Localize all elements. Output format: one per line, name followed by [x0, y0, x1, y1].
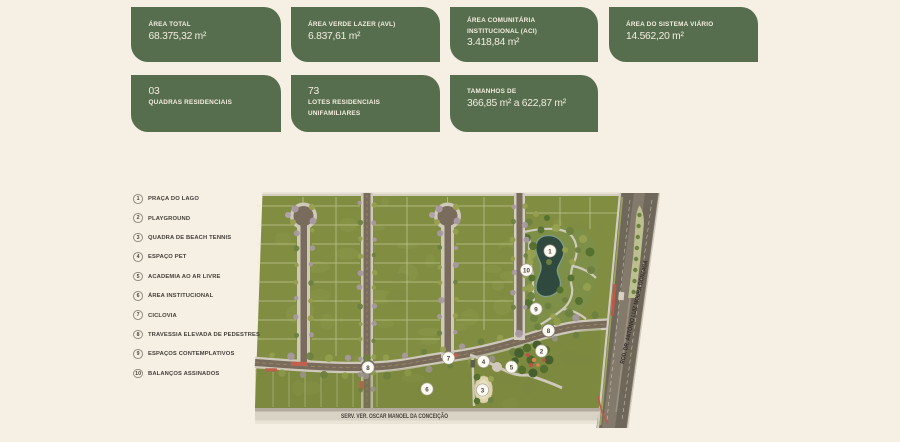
svg-text:1: 1 — [548, 248, 552, 255]
svg-text:6: 6 — [425, 386, 429, 393]
svg-text:4: 4 — [482, 359, 486, 366]
svg-text:10: 10 — [523, 267, 530, 274]
svg-text:5: 5 — [510, 364, 514, 371]
svg-text:3: 3 — [481, 387, 485, 394]
svg-text:8: 8 — [547, 328, 551, 335]
svg-text:SERV. VER. OSCAR MANOEL DA CON: SERV. VER. OSCAR MANOEL DA CONCEIÇÃO — [341, 413, 448, 420]
svg-text:2: 2 — [540, 348, 544, 355]
svg-text:7: 7 — [447, 355, 451, 362]
svg-text:9: 9 — [534, 306, 538, 313]
svg-text:8: 8 — [366, 365, 370, 372]
